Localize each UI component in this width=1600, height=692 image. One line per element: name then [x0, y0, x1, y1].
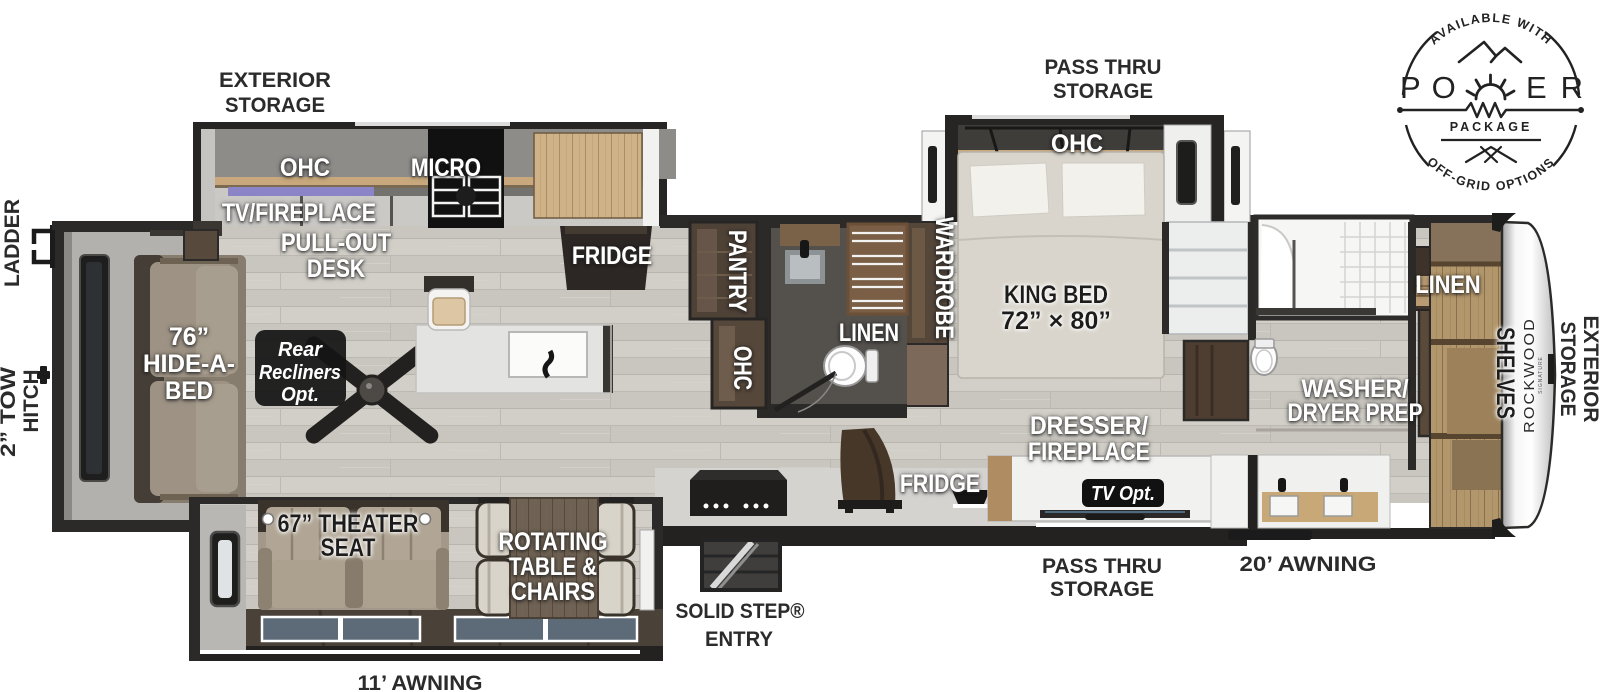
- svg-text:KING BED: KING BED: [1004, 281, 1108, 309]
- svg-text:PULL-OUT: PULL-OUT: [281, 229, 391, 257]
- svg-text:FRIDGE: FRIDGE: [900, 470, 980, 498]
- svg-text:EXTERIOR: EXTERIOR: [1579, 316, 1600, 423]
- svg-text:ROCKWOOD: ROCKWOOD: [1521, 317, 1538, 433]
- svg-text:MICRO: MICRO: [411, 154, 481, 182]
- svg-text:PO: PO: [1400, 70, 1467, 105]
- svg-text:SEAT: SEAT: [321, 534, 376, 562]
- svg-text:ER: ER: [1526, 70, 1597, 105]
- svg-text:HIDE-A-: HIDE-A-: [143, 350, 235, 378]
- svg-text:SIGNATURE: SIGNATURE: [1538, 356, 1544, 394]
- svg-text:EXTERIOR: EXTERIOR: [219, 69, 331, 92]
- svg-text:Recliners: Recliners: [259, 362, 341, 384]
- svg-text:Opt.: Opt.: [281, 384, 319, 406]
- svg-text:WARDROBE: WARDROBE: [930, 217, 958, 339]
- svg-text:PASS THRU: PASS THRU: [1045, 56, 1162, 79]
- svg-text:LINEN: LINEN: [839, 319, 899, 347]
- svg-text:PANTRY: PANTRY: [723, 230, 751, 312]
- svg-text:20’ AWNING: 20’ AWNING: [1240, 553, 1377, 576]
- svg-text:ENTRY: ENTRY: [705, 628, 773, 651]
- svg-text:STORAGE: STORAGE: [1050, 578, 1154, 601]
- svg-text:STORAGE: STORAGE: [225, 94, 325, 117]
- svg-text:SOLID STEP®: SOLID STEP®: [676, 600, 805, 623]
- svg-text:FRIDGE: FRIDGE: [572, 242, 652, 270]
- svg-text:2” TOW: 2” TOW: [0, 367, 20, 457]
- svg-text:PASS THRU: PASS THRU: [1042, 555, 1162, 578]
- svg-text:Rear: Rear: [278, 339, 323, 361]
- svg-text:STORAGE: STORAGE: [1556, 322, 1579, 417]
- svg-text:OHC: OHC: [280, 154, 330, 182]
- svg-text:TABLE &: TABLE &: [509, 553, 597, 581]
- svg-text:OHC: OHC: [1051, 130, 1103, 158]
- svg-text:11’ AWNING: 11’ AWNING: [358, 672, 483, 692]
- svg-text:TV Opt.: TV Opt.: [1091, 483, 1155, 505]
- svg-text:DRESSER/: DRESSER/: [1030, 412, 1148, 440]
- svg-text:ROTATING: ROTATING: [499, 528, 608, 556]
- svg-text:BED: BED: [165, 377, 213, 405]
- svg-text:FIREPLACE: FIREPLACE: [1028, 438, 1150, 466]
- svg-text:LINEN: LINEN: [1416, 271, 1481, 299]
- svg-text:STORAGE: STORAGE: [1053, 80, 1153, 103]
- svg-text:DESK: DESK: [307, 255, 365, 283]
- svg-text:TV/FIREPLACE: TV/FIREPLACE: [222, 199, 376, 227]
- svg-text:76”: 76”: [169, 323, 209, 351]
- svg-text:DRYER PREP: DRYER PREP: [1288, 399, 1423, 427]
- svg-text:PACKAGE: PACKAGE: [1450, 120, 1533, 134]
- svg-text:SHELVES: SHELVES: [1491, 327, 1519, 419]
- svg-text:OHC: OHC: [728, 346, 756, 390]
- svg-text:LADDER: LADDER: [1, 199, 24, 287]
- svg-text:72” × 80”: 72” × 80”: [1001, 307, 1111, 335]
- svg-text:HITCH: HITCH: [20, 370, 43, 433]
- svg-text:CHAIRS: CHAIRS: [511, 578, 595, 606]
